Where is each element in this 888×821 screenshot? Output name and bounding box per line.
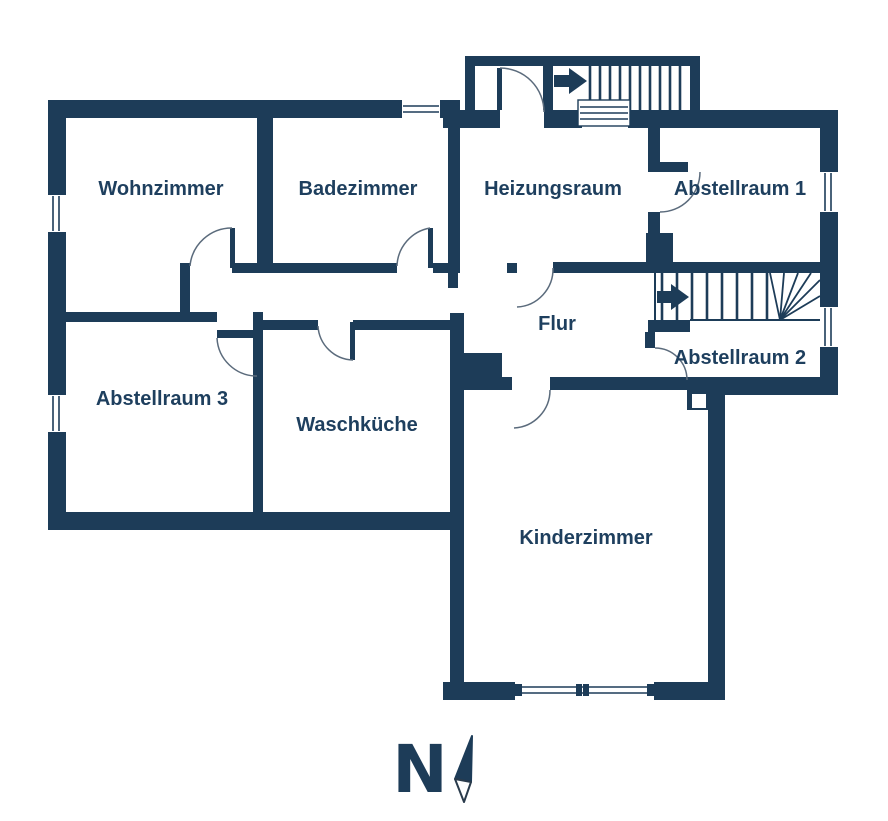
wall-segment xyxy=(48,100,66,195)
stair-direction-arrow-icon xyxy=(554,68,587,94)
chimney-block xyxy=(462,353,502,390)
wall-segment xyxy=(450,313,464,682)
room-label-flur: Flur xyxy=(538,313,576,335)
room-label-abstellraum2: Abstellraum 2 xyxy=(674,347,806,369)
room-label-heizungsraum: Heizungsraum xyxy=(484,178,622,200)
wall-segment xyxy=(507,263,517,273)
chimney-block xyxy=(646,233,673,263)
door-waschkueche xyxy=(318,322,355,360)
wall-segment xyxy=(708,390,725,700)
wall-segment xyxy=(232,263,397,273)
compass: N xyxy=(392,731,472,808)
wall-segment xyxy=(820,110,838,172)
window-kinderzimmer-double xyxy=(515,684,654,696)
compass-needle-icon xyxy=(455,736,472,802)
window-abstellraum2 xyxy=(820,307,838,347)
window-wohnzimmer xyxy=(48,195,66,232)
room-label-abstellraum3: Abstellraum 3 xyxy=(96,388,228,410)
floor-plan-page: Wohnzimmer Badezimmer Heizungsraum Abste… xyxy=(0,0,888,821)
room-label-badezimmer: Badezimmer xyxy=(299,178,418,200)
room-label-wohnzimmer: Wohnzimmer xyxy=(98,178,223,200)
wall-segment xyxy=(448,128,460,263)
walls xyxy=(48,56,838,700)
door-badezimmer xyxy=(397,228,433,268)
wall-segment xyxy=(443,682,515,700)
room-label-waschkueche: Waschküche xyxy=(296,414,418,436)
compass-north-label: N xyxy=(392,731,447,808)
floor-plan-drawing: Wohnzimmer Badezimmer Heizungsraum Abste… xyxy=(0,0,888,821)
wall-segment xyxy=(465,56,475,110)
wall-segment xyxy=(263,320,318,330)
wall-segment xyxy=(648,320,690,332)
wall-segment xyxy=(550,377,710,390)
window-abstellraum1 xyxy=(820,172,838,212)
wall-segment xyxy=(654,682,725,700)
wall-segment xyxy=(48,100,402,118)
door-heizungsraum-flur xyxy=(517,268,553,307)
wall-segment xyxy=(465,56,700,66)
stair-landing-steps xyxy=(578,100,630,126)
wall-segment xyxy=(48,312,217,322)
door-abstellraum3 xyxy=(217,330,257,376)
wall-segment xyxy=(433,263,460,273)
room-label-abstellraum1: Abstellraum 1 xyxy=(674,178,806,200)
wall-segment xyxy=(690,56,700,128)
wall-notch xyxy=(692,394,706,408)
wall-segment xyxy=(48,512,460,530)
window-badezimmer xyxy=(402,100,440,118)
wall-segment xyxy=(648,128,660,172)
wall-segment xyxy=(544,110,582,128)
wall-segment xyxy=(353,320,450,330)
winder-steps xyxy=(770,273,820,320)
staircase-lower xyxy=(655,273,820,320)
wall-segment xyxy=(553,262,820,273)
wall-segment xyxy=(543,66,553,110)
wall-segment xyxy=(820,212,838,307)
wall-segment xyxy=(660,162,688,172)
wall-segment xyxy=(645,332,655,348)
door-kinderzimmer xyxy=(514,390,550,428)
wall-segment xyxy=(443,110,500,128)
wall-segment xyxy=(253,312,263,512)
wall-segment xyxy=(628,110,820,128)
room-label-kinderzimmer: Kinderzimmer xyxy=(519,527,653,549)
wall-segment xyxy=(257,118,273,263)
wall-segment xyxy=(448,273,458,288)
door-entry-bumpout xyxy=(497,68,544,112)
door-wohnzimmer xyxy=(190,228,235,268)
window-abstellraum3 xyxy=(48,395,66,432)
